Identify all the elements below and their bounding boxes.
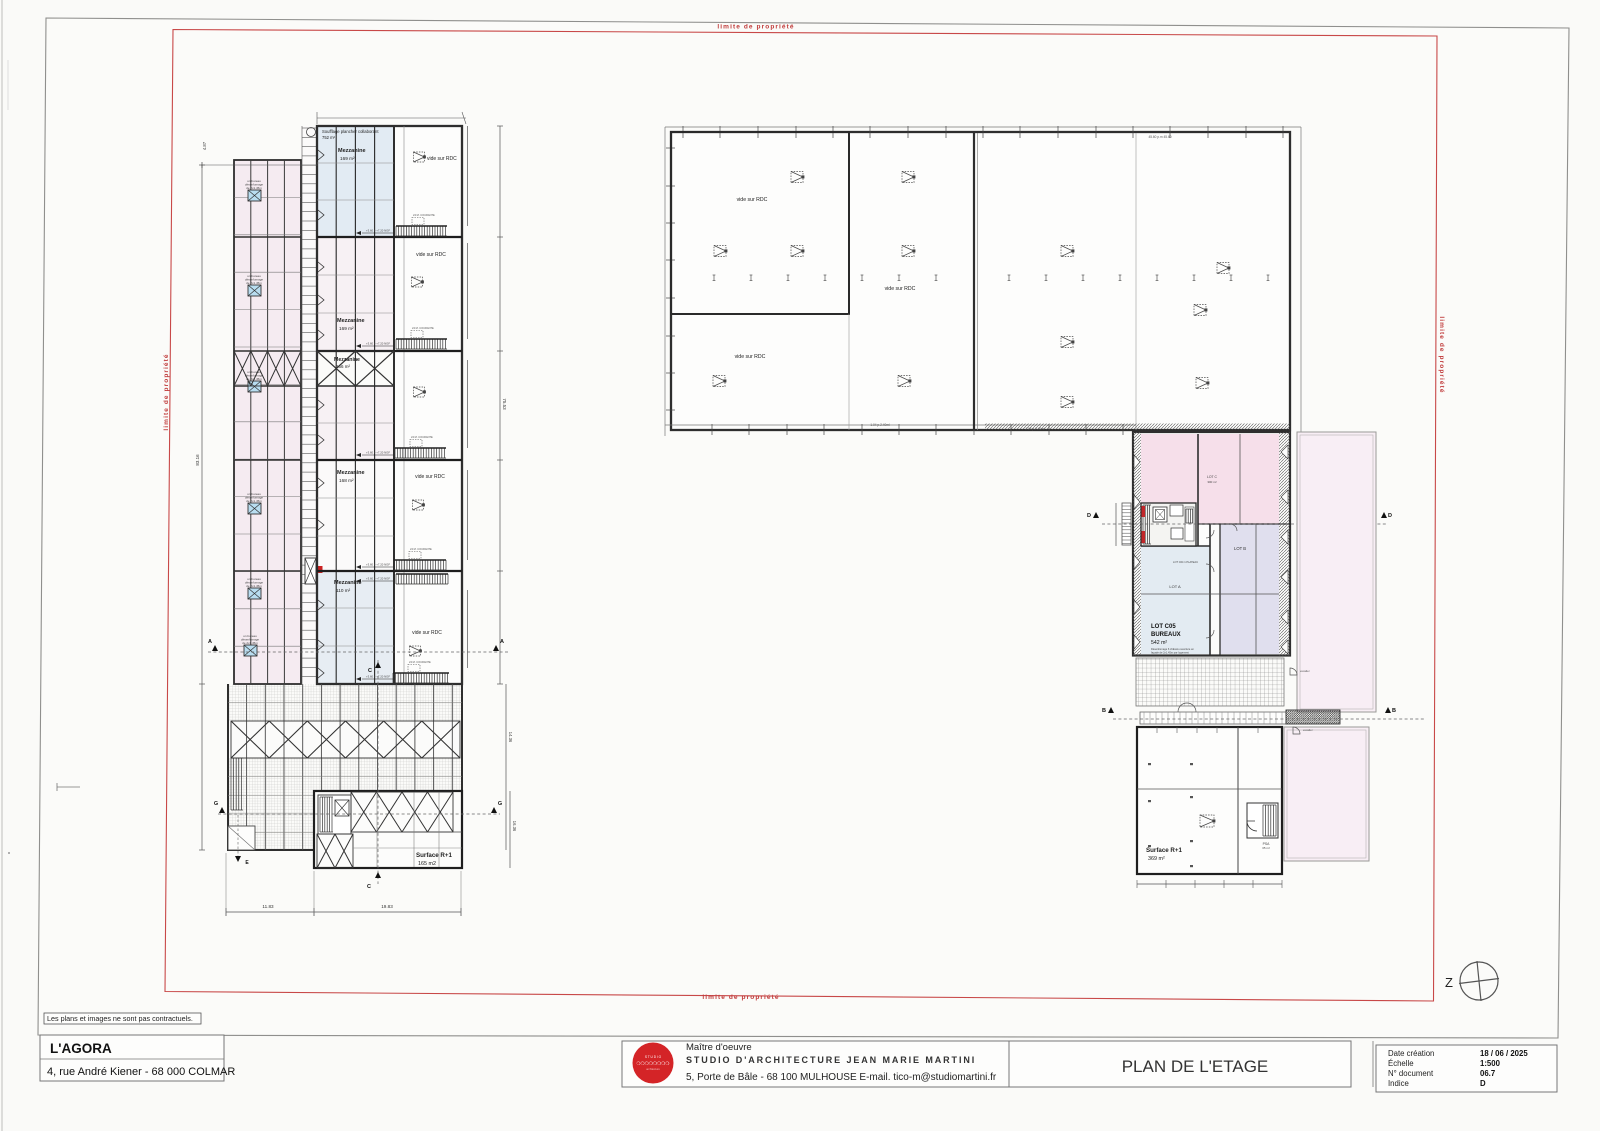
svg-text:24 M. COURANTE: 24 M. COURANTE [412,326,434,330]
svg-text:LOT A: LOT A [1169,584,1181,589]
svg-text:B: B [1102,708,1106,714]
svg-text:PLAN DE L'ETAGE: PLAN DE L'ETAGE [1122,1057,1269,1076]
svg-text:vide sur RDC: vide sur RDC [737,197,768,203]
svg-text:vide sur RDC: vide sur RDC [885,286,916,292]
svg-text:D: D [1388,513,1392,519]
svg-text:de 2x1.45m: de 2x1.45m [246,499,262,503]
svg-text:+3.60 = +7.20 NGF: +3.60 = +7.20 NGF [366,577,390,581]
svg-text:110 m²: 110 m² [336,588,351,593]
svg-text:B: B [1392,708,1396,714]
svg-text:A: A [500,639,504,645]
svg-text:5, Porte de Bâle - 68 100 MULH: 5, Porte de Bâle - 68 100 MULHOUSE E-mai… [686,1072,997,1083]
svg-text:A: A [208,639,212,645]
svg-text:24 M. COURANTE: 24 M. COURANTE [413,213,435,217]
svg-text:542 m²: 542 m² [1151,640,1167,646]
svg-text:D: D [1087,513,1091,519]
svg-text:Mezzanine: Mezzanine [337,470,365,476]
svg-text:D: D [1480,1079,1486,1088]
svg-text:752 m²: 752 m² [322,135,336,140]
svg-text:limite de propriété: limite de propriété [1438,316,1445,393]
svg-text:16.36: 16.36 [512,821,517,832]
svg-text:14.36: 14.36 [508,732,513,743]
svg-text:G: G [498,801,502,807]
svg-text:G: G [214,801,218,807]
svg-text:LOT B: LOT B [1234,546,1246,551]
svg-text:19.83: 19.83 [381,904,393,909]
svg-text:limite de propriété: limite de propriété [163,353,170,430]
svg-text:24 M. COURANTE: 24 M. COURANTE [409,660,431,664]
svg-text:LOT C05: LOT C05 [1151,624,1176,630]
svg-text:Soufflage plancher collaborant: Soufflage plancher collaborant [322,129,379,134]
svg-text:+3.60 = +7.20 NGF: +3.60 = +7.20 NGF [366,451,390,455]
svg-text:83.16: 83.16 [195,454,200,466]
svg-text:+3.60 = +7.20 NGF: +3.60 = +7.20 NGF [366,342,390,346]
svg-text:4, rue André Kiener - 68 000 C: 4, rue André Kiener - 68 000 COLMAR [47,1066,235,1078]
svg-text:Mezzanine: Mezzanine [337,318,365,324]
svg-text:vide sur RDC: vide sur RDC [415,474,445,480]
svg-text:escalier: escalier [1300,669,1310,673]
svg-text:169 m²: 169 m² [340,156,355,161]
svg-text:architecture: architecture [646,1067,660,1071]
svg-text:369 m²: 369 m² [1148,856,1165,862]
svg-text:Mezzanine: Mezzanine [338,148,366,154]
svg-text:24 M. COURANTE: 24 M. COURANTE [411,435,433,439]
svg-text:168 m²: 168 m² [339,478,354,483]
svg-text:11.83: 11.83 [262,904,274,909]
svg-text:L'AGORA: L'AGORA [50,1041,112,1056]
svg-text:18 / 06 / 2025: 18 / 06 / 2025 [1480,1049,1528,1058]
svg-text:vide sur RDC: vide sur RDC [427,156,457,162]
svg-text:Z: Z [1445,975,1453,990]
svg-text:Les plans et images ne sont pa: Les plans et images ne sont pas contract… [47,1014,193,1023]
svg-text:+3.60 = +7.20 NGF: +3.60 = +7.20 NGF [366,229,390,233]
svg-text:vide sur RDC: vide sur RDC [416,252,446,258]
svg-text:LOT C: LOT C [1207,475,1217,479]
svg-text:N° document: N° document [1388,1069,1434,1078]
svg-text:+3.60 = +7.20 NGF: +3.60 = +7.20 NGF [366,563,390,567]
svg-text:06.7: 06.7 [1480,1069,1495,1078]
svg-text:4.87: 4.87 [202,141,207,150]
svg-text:de 2x1.45m: de 2x1.45m [246,584,262,588]
svg-text:de 2x1.45m: de 2x1.45m [242,641,258,645]
svg-text:Échelle: Échelle [1388,1059,1414,1068]
svg-text:1.04 p.2.40ml: 1.04 p.2.40ml [870,423,890,427]
svg-text:❍❍❍❍❍❍❍❍: ❍❍❍❍❍❍❍❍ [637,1061,671,1066]
svg-text:169 m²: 169 m² [339,326,354,331]
svg-text:Date création: Date création [1388,1049,1434,1058]
svg-text:Indice: Indice [1388,1079,1409,1088]
svg-text:75.53: 75.53 [502,398,507,410]
svg-text:165 m2: 165 m2 [418,861,436,867]
svg-text:300 m²: 300 m² [1207,480,1216,484]
svg-text:Désenfumage 6 châssis ouvertur: Désenfumage 6 châssis ouverture en [1151,647,1195,651]
svg-text:de 2x1.45m: de 2x1.45m [246,186,262,190]
svg-text:C: C [368,668,372,674]
svg-text:Maître d'oeuvre: Maître d'oeuvre [686,1042,752,1053]
svg-text:façade de 2x1.45m par logement: façade de 2x1.45m par logement [1151,650,1189,654]
svg-text:C: C [367,884,371,890]
svg-text:S T U D I O: S T U D I O [645,1055,662,1059]
svg-text:BUREAUX: BUREAUX [1151,632,1181,638]
svg-text:LOT C04 1 PLATEAU: LOT C04 1 PLATEAU [1173,560,1198,564]
svg-text:Surface R+1: Surface R+1 [1146,847,1182,854]
svg-text:24 M. COURANTE: 24 M. COURANTE [410,547,432,551]
svg-text:limite de propriété: limite de propriété [717,24,794,31]
svg-text:45.60 p.m 45.60: 45.60 p.m 45.60 [1148,135,1171,139]
svg-text:1:500: 1:500 [1480,1059,1501,1068]
svg-text:vide sur RDC: vide sur RDC [735,354,766,360]
svg-text:escalier: escalier [1303,728,1313,732]
svg-text:de 2x1.45m: de 2x1.45m [246,281,262,285]
svg-text:limite de propriété: limite de propriété [702,994,779,1001]
svg-text:vide sur RDC: vide sur RDC [412,630,442,636]
svg-text:35 m²: 35 m² [1262,846,1270,850]
svg-text:Surface R+1: Surface R+1 [416,852,452,859]
svg-text:STUDIO D'ARCHITECTURE JEAN MAR: STUDIO D'ARCHITECTURE JEAN MARIE MARTINI [686,1055,976,1065]
